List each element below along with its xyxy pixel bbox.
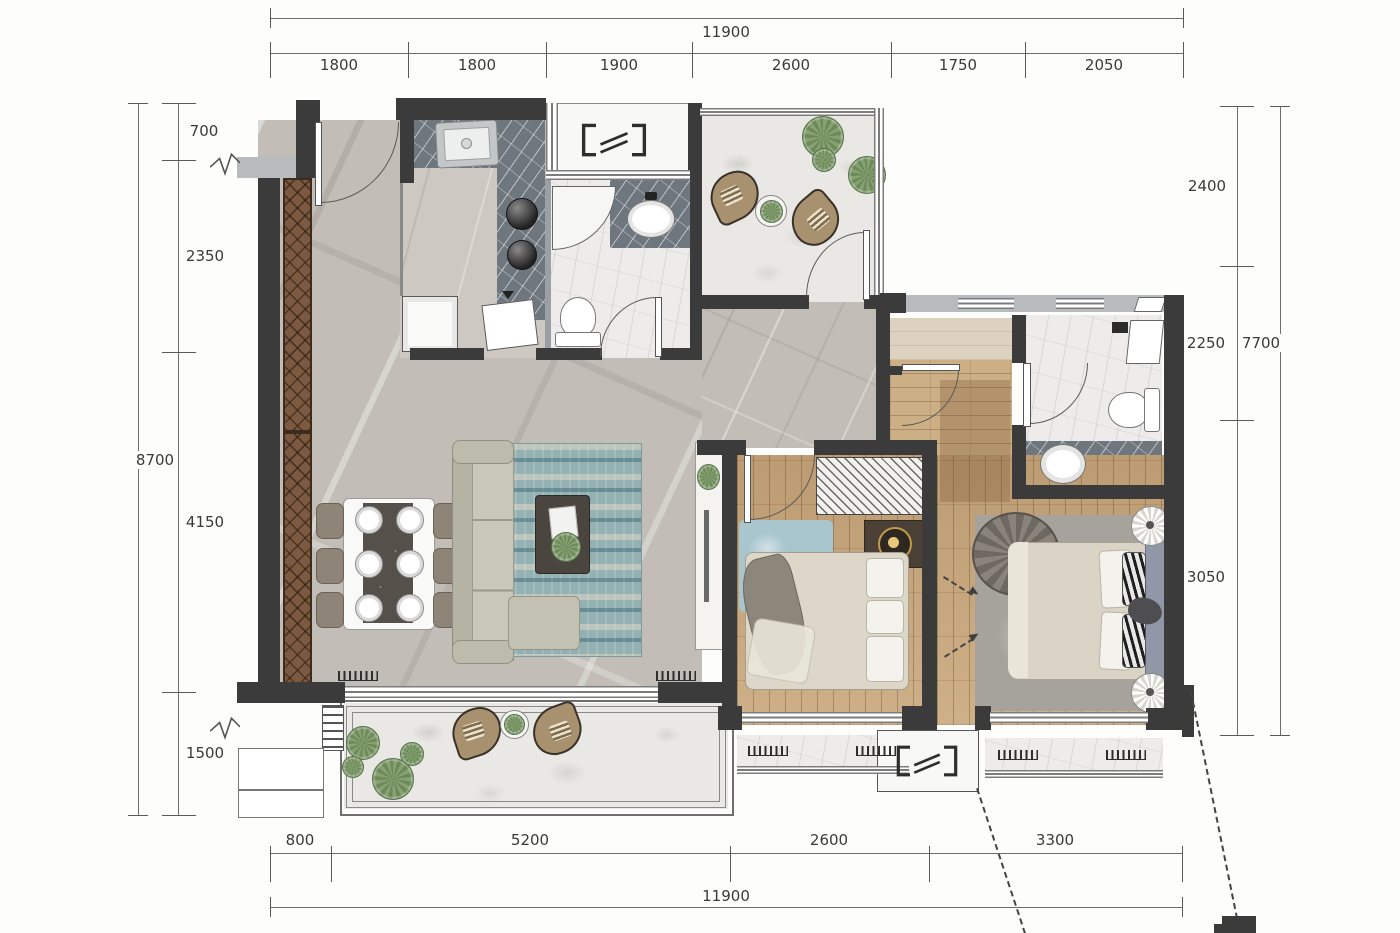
dim-top-overall: 11900	[700, 23, 752, 41]
dim-tick	[270, 42, 271, 78]
dim-top-seg3: 2600	[770, 56, 812, 74]
master-window	[990, 712, 1148, 723]
curtain-track-mark	[338, 671, 378, 681]
shoe-cabinet-upper	[283, 178, 312, 432]
bedroom2-top-wall-east	[814, 440, 937, 455]
bathroom1-door-leaf	[655, 297, 662, 357]
rightwing-top-pier	[880, 293, 906, 313]
bedroom2-bay-outer-rail	[737, 766, 909, 774]
shoe-cabinet-lower	[283, 432, 312, 692]
bathroom2-fixture	[1112, 322, 1128, 333]
dim-tick	[162, 160, 196, 161]
dim-top-outer-line	[270, 18, 1183, 19]
dim-tick	[692, 42, 693, 78]
dim-tick	[1182, 846, 1183, 882]
suite-door-stub	[876, 366, 902, 375]
dim-left-seg1: 2350	[184, 247, 226, 265]
place-setting	[355, 594, 383, 622]
dim-left-seg2: 4150	[184, 513, 226, 531]
faucet1-icon	[645, 192, 657, 200]
dim-tick	[162, 692, 196, 693]
bedroom2-pillow	[866, 636, 904, 682]
bedroom2-top-wall-west	[697, 440, 746, 455]
dining-chair	[316, 548, 344, 584]
bedroom2-window	[742, 712, 902, 723]
dim-top-inner-line	[270, 53, 1183, 54]
dim-tick	[1025, 42, 1026, 78]
dim-top-seg0: 1800	[318, 56, 360, 74]
ac-outdoor-unit-block-step	[1214, 924, 1224, 933]
sofa-armrest-top	[452, 440, 514, 464]
place-setting	[396, 550, 424, 578]
bathroom2-left-wall-top	[1012, 315, 1026, 363]
curtain-track-mark	[998, 750, 1038, 760]
bedroom2-right-wall	[922, 455, 937, 725]
wall-break-mark	[210, 152, 240, 178]
dim-left-overall: 8700	[134, 451, 176, 469]
stove-burner	[506, 198, 538, 230]
dim-bottom-seg1: 5200	[509, 831, 551, 849]
balcony-tree-small	[400, 742, 424, 766]
dim-tick	[408, 42, 409, 78]
bathroom2-shower-panel	[1126, 320, 1165, 364]
dim-bottom-inner-line	[270, 853, 1183, 854]
kitchen-door-marker	[502, 291, 514, 299]
dim-tick	[270, 897, 271, 917]
suite-door-leaf	[902, 364, 960, 371]
dim-bottom-overall: 11900	[700, 887, 752, 905]
dim-bottom-seg3: 3300	[1034, 831, 1076, 849]
dim-tick	[128, 815, 148, 816]
dim-tick	[162, 352, 196, 353]
dim-tick	[1270, 106, 1290, 107]
master-duvet-fold	[1008, 542, 1028, 678]
dim-tick	[128, 103, 148, 104]
bedroom2-pillow	[866, 600, 904, 634]
kitchen-left-wall	[400, 103, 414, 183]
terrace-door-leaf	[863, 230, 870, 300]
dim-tick	[270, 846, 271, 882]
dim-tick	[1220, 420, 1254, 421]
dim-tick	[270, 8, 271, 28]
dim-tick	[162, 815, 196, 816]
ac-leader-line	[1190, 692, 1238, 919]
dim-tick	[1183, 42, 1184, 78]
bedroom2-lamp-bulb	[888, 537, 899, 548]
living-balcony-slider	[345, 686, 658, 698]
dim-top-seg4: 1750	[937, 56, 979, 74]
dim-tick	[546, 42, 547, 78]
toilet1-bowl	[560, 297, 596, 337]
dim-bottom-outer-line	[270, 907, 1183, 908]
nightstand-center-dot	[1146, 688, 1154, 696]
bedroom2-bay-pier-east	[902, 706, 937, 730]
vestibule-wall-lower	[876, 375, 890, 440]
place-setting	[355, 550, 383, 578]
dim-tick	[1182, 897, 1183, 917]
master-bay-pier-east	[1146, 708, 1184, 730]
dim-right-seg0: 2400	[1186, 177, 1228, 195]
terrace-bottom-wall	[697, 295, 809, 309]
dim-bottom-seg2: 2600	[808, 831, 850, 849]
dim-right-overall: 7700	[1240, 334, 1282, 352]
sofa-armrest-bottom	[452, 640, 514, 664]
curtain-track-mark	[1106, 750, 1146, 760]
dim-tick	[162, 103, 196, 104]
dim-top-seg2: 1900	[598, 56, 640, 74]
dim-tick	[1183, 8, 1184, 28]
living-bottom-wall-east	[658, 682, 730, 703]
ac-unit-icon	[893, 744, 961, 778]
hallway-floor	[890, 318, 1012, 360]
stove-burner	[507, 240, 537, 270]
bedroom2-bay-pier-west	[718, 706, 742, 730]
balcony-tree-small	[342, 756, 364, 778]
nightstand-center-dot	[1146, 521, 1154, 529]
dim-left-inner-line	[178, 103, 179, 815]
washbasin2	[1040, 444, 1086, 484]
curtain-track-mark	[748, 746, 788, 756]
master-bay-pier-west	[975, 706, 991, 730]
kitchen-cabinet-edge	[400, 183, 403, 296]
terrace-top-railing	[700, 108, 882, 116]
balcony-table-plant	[504, 714, 525, 735]
ac-platform-left-window	[546, 103, 558, 178]
left-wall	[258, 157, 280, 695]
dim-right-seg2: 3050	[1185, 568, 1227, 586]
ac-outdoor-unit-block	[1222, 916, 1256, 933]
kitchen-sliding-door	[481, 299, 538, 351]
bedroom2-pillow	[866, 558, 904, 598]
dining-chair	[316, 592, 344, 628]
living-floor-east	[702, 300, 882, 448]
bathroom2-bottom-wall	[1012, 485, 1164, 499]
dim-left-seg3: 1500	[184, 744, 226, 762]
ac-unit-icon	[578, 122, 650, 158]
place-setting	[396, 506, 424, 534]
floor-plan: 11900 1800 1800 1900 2600 1750 2050 800 …	[0, 0, 1400, 933]
dim-tick	[1220, 106, 1254, 107]
dim-left-seg0: 700	[188, 122, 221, 140]
dim-right-seg1: 2250	[1185, 334, 1227, 352]
dim-tick	[891, 42, 892, 78]
terrace-tree-small	[812, 148, 836, 172]
planter-box-upper	[238, 748, 324, 790]
bedroom2-sheet-fold	[745, 617, 816, 685]
sink-drain	[461, 138, 472, 149]
kitchen-bath-bottom-wall-a	[410, 348, 484, 360]
toilet2-tank	[1144, 388, 1160, 432]
bathroom1-kitchen-divider	[545, 180, 551, 348]
bedroom2-door-leaf	[744, 455, 751, 523]
place-setting	[396, 594, 424, 622]
terrace-table-plant	[760, 200, 783, 223]
toilet1-tank	[555, 332, 601, 347]
rightwing-window	[1056, 298, 1104, 309]
sofa-chaise	[508, 596, 580, 650]
wall-break-mark	[210, 716, 240, 742]
dim-tick	[331, 846, 332, 882]
dim-tick	[929, 846, 930, 882]
ac-leader-line	[976, 788, 1026, 933]
rightwing-window	[958, 298, 1014, 309]
dim-tick	[1220, 266, 1254, 267]
dim-tick	[1220, 735, 1254, 736]
tv-cabinet-plant	[697, 464, 720, 490]
place-setting	[355, 506, 383, 534]
ac-platform-bottom-window	[546, 170, 690, 180]
master-bay-outer-rail	[985, 770, 1163, 778]
dim-top-seg1: 1800	[456, 56, 498, 74]
entry-door-leaf	[315, 122, 322, 206]
bathroom2-left-wall-bottom	[1012, 425, 1026, 485]
right-wall	[1164, 295, 1184, 709]
planter-box-lower	[238, 790, 324, 818]
dim-right-outer-line	[1280, 106, 1281, 735]
dim-top-seg5: 2050	[1083, 56, 1125, 74]
curtain-track-mark	[656, 671, 696, 681]
ac-louver-grille	[322, 705, 344, 751]
washbasin1	[627, 200, 675, 238]
dim-tick	[1270, 735, 1290, 736]
balcony-tree	[346, 726, 380, 760]
living-bottom-wall-west	[237, 682, 345, 703]
fridge	[402, 296, 458, 352]
dim-bottom-seg0: 800	[284, 831, 317, 849]
rightwing-hatch-door	[1134, 297, 1167, 312]
dining-chair	[316, 503, 344, 539]
curtain-track-mark	[856, 746, 896, 756]
bathroom2-door-leaf	[1023, 363, 1031, 427]
bath1-terrace-wall	[690, 180, 702, 360]
kitchen-bath-bottom-wall-b	[536, 348, 602, 360]
tv-screen	[704, 510, 709, 602]
dim-tick	[730, 846, 731, 882]
kitchen-top-wall	[396, 98, 546, 120]
terrace-right-railing	[874, 108, 884, 304]
coffee-table-plant	[551, 532, 581, 562]
toilet2-bowl	[1108, 392, 1148, 428]
bedroom2-wardrobe	[816, 457, 924, 515]
